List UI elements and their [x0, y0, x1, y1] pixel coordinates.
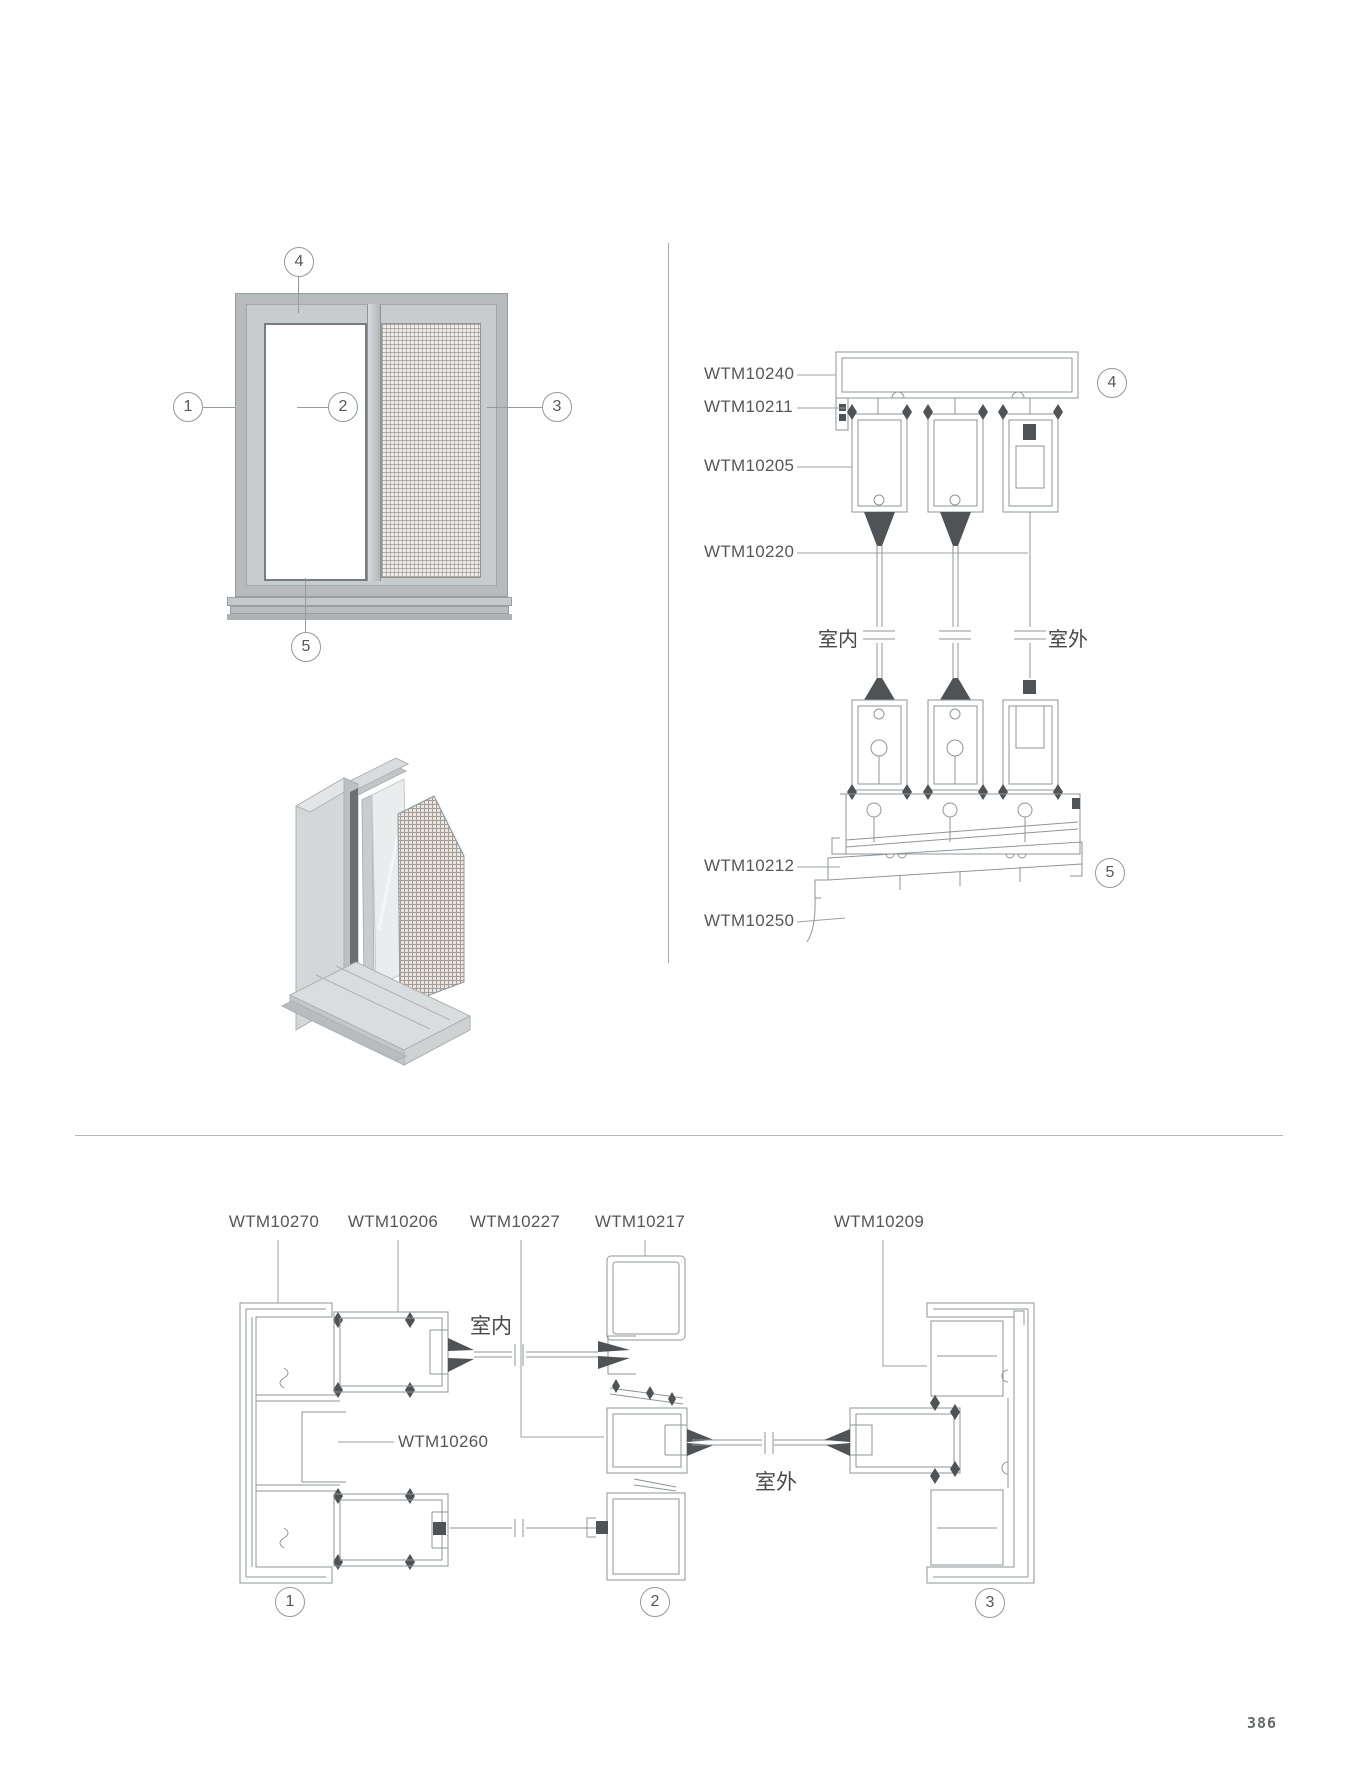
horizontal-section-drawing — [240, 1240, 1034, 1583]
part-label-wtm10206: WTM10206 — [343, 1212, 443, 1232]
part-label-wtm10250: WTM10250 — [704, 911, 794, 931]
callout-section-2: 2 — [640, 1587, 670, 1617]
callout-section-5: 5 — [1095, 858, 1125, 888]
part-label-wtm10220: WTM10220 — [704, 542, 794, 562]
indoor-label-vertical: 室内 — [812, 623, 864, 652]
callout-section-3: 3 — [975, 1588, 1005, 1618]
part-label-wtm10212: WTM10212 — [704, 856, 794, 876]
outdoor-label-horizontal: 室外 — [746, 1466, 806, 1496]
indoor-label-horizontal: 室内 — [461, 1310, 521, 1340]
part-label-wtm10217: WTM10217 — [590, 1212, 690, 1232]
part-label-wtm10270: WTM10270 — [224, 1212, 324, 1232]
catalog-page: 1 2 3 4 5 — [0, 0, 1358, 1770]
part-label-wtm10205: WTM10205 — [704, 456, 794, 476]
technical-line-drawings — [0, 0, 1358, 1770]
part-label-wtm10240: WTM10240 — [704, 364, 794, 384]
corner-render-3d — [282, 758, 470, 1065]
page-number: 386 — [1240, 1714, 1284, 1732]
part-label-wtm10209: WTM10209 — [829, 1212, 929, 1232]
part-label-wtm10211: WTM10211 — [704, 397, 793, 417]
part-label-wtm10260: WTM10260 — [398, 1432, 488, 1452]
callout-section-1: 1 — [275, 1587, 305, 1617]
part-label-wtm10227: WTM10227 — [465, 1212, 565, 1232]
callout-section-4: 4 — [1097, 368, 1127, 398]
outdoor-label-vertical: 室外 — [1042, 623, 1094, 652]
